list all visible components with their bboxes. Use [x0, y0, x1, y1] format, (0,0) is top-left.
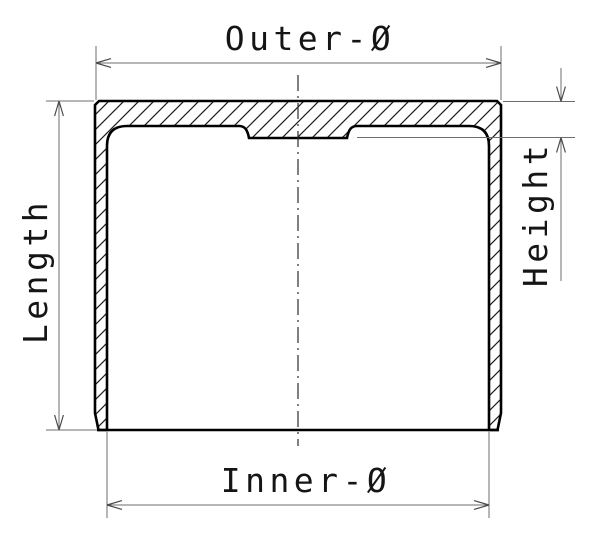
drawing-svg: Outer-Ø Inner-Ø Length: [0, 0, 600, 553]
technical-drawing-canvas: Outer-Ø Inner-Ø Length: [0, 0, 600, 553]
height-label: Height: [516, 141, 555, 287]
inner-diameter-label: Inner-Ø: [221, 461, 392, 500]
dim-length: Length: [16, 101, 97, 430]
outer-diameter-label: Outer-Ø: [225, 19, 396, 58]
length-label: Length: [16, 198, 55, 344]
